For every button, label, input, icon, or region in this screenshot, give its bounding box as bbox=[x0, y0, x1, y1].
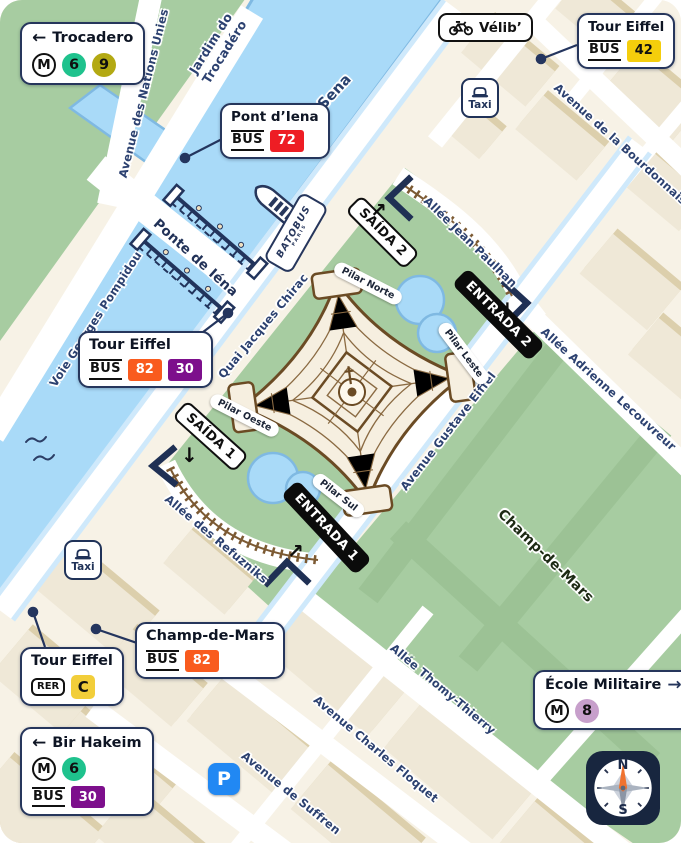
badge-bir-hakeim[interactable]: ← Bir Hakeim M 6 BUS 30 bbox=[20, 727, 154, 816]
rer-line-c-badge: C bbox=[71, 675, 95, 699]
parking-marker[interactable]: P bbox=[208, 763, 240, 795]
taxi-label: Taxi bbox=[468, 100, 491, 111]
exit-1-arrow-icon: ↓ bbox=[181, 445, 198, 465]
bus-label: BUS bbox=[231, 130, 264, 151]
velib-station-marker[interactable]: Vélib’ bbox=[438, 13, 533, 42]
metro-line-9-badge: 9 bbox=[92, 53, 116, 77]
arrow-right-icon: → bbox=[667, 677, 681, 694]
compass-south-label: S bbox=[618, 804, 627, 817]
bus-label: BUS bbox=[89, 359, 122, 380]
badge-title: Tour Eiffel bbox=[588, 20, 664, 35]
badge-tour-eiffel-bus[interactable]: Tour Eiffel BUS 82 30 bbox=[78, 331, 213, 388]
map-canvas: Avenue des Nations Unies Avenue de la Bo… bbox=[0, 0, 681, 843]
bus-route-82-badge: 82 bbox=[185, 650, 219, 672]
badge-tour-eiffel-rer[interactable]: Tour Eiffel RER C bbox=[20, 647, 124, 706]
taxi-car-icon bbox=[72, 548, 94, 561]
badge-title: Trocadero bbox=[52, 31, 133, 47]
badge-title: Pont d’Iena bbox=[231, 110, 319, 125]
metro-icon: M bbox=[545, 699, 569, 723]
badge-title: Bir Hakeim bbox=[52, 736, 141, 752]
bus-label: BUS bbox=[146, 650, 179, 671]
metro-line-6-badge: 6 bbox=[62, 53, 86, 77]
metro-icon: M bbox=[32, 53, 56, 77]
badge-title: Champ-de-Mars bbox=[146, 629, 274, 645]
badge-title: École Militaire bbox=[545, 678, 661, 694]
bus-label: BUS bbox=[588, 40, 621, 61]
taxi-stand-marker-south[interactable]: Taxi bbox=[64, 540, 102, 580]
compass-rose: N S bbox=[586, 751, 660, 825]
badge-pont-d-iena[interactable]: Pont d’Iena BUS 72 bbox=[220, 103, 330, 159]
bicycle-icon bbox=[449, 19, 473, 36]
bus-route-82-badge: 82 bbox=[128, 359, 162, 381]
badge-ecole-militaire[interactable]: École Militaire → M 8 bbox=[533, 670, 681, 730]
entrance-1-arrow-icon: ↗ bbox=[287, 541, 304, 561]
bus-route-30-badge: 30 bbox=[71, 786, 105, 808]
badge-champ-de-mars-bus[interactable]: Champ-de-Mars BUS 82 bbox=[135, 622, 285, 679]
compass-north-label: N bbox=[618, 759, 629, 772]
entrance-2-arrow-icon: ↓ bbox=[499, 300, 516, 320]
bus-route-42-badge: 42 bbox=[627, 40, 661, 62]
badge-tour-eiffel-bus-42[interactable]: Tour Eiffel BUS 42 bbox=[577, 13, 675, 69]
badge-title: Tour Eiffel bbox=[31, 654, 113, 670]
velib-label: Vélib’ bbox=[479, 20, 522, 36]
metro-line-8-badge: 8 bbox=[575, 699, 599, 723]
badge-title: Tour Eiffel bbox=[89, 338, 202, 354]
bus-route-72-badge: 72 bbox=[270, 130, 304, 152]
bus-route-30-badge: 30 bbox=[168, 359, 202, 381]
rer-icon: RER bbox=[31, 678, 65, 696]
metro-icon: M bbox=[32, 757, 56, 781]
taxi-label: Taxi bbox=[71, 562, 94, 573]
arrow-left-icon: ← bbox=[32, 30, 46, 47]
exit-2-arrow-icon: ↗ bbox=[370, 200, 387, 220]
metro-line-6-badge: 6 bbox=[62, 757, 86, 781]
badge-trocadero[interactable]: ← Trocadero M 6 9 bbox=[20, 22, 145, 85]
taxi-stand-marker-north[interactable]: Taxi bbox=[461, 78, 499, 118]
bus-label: BUS bbox=[32, 787, 65, 808]
arrow-left-icon: ← bbox=[32, 735, 46, 752]
taxi-car-icon bbox=[469, 86, 491, 99]
